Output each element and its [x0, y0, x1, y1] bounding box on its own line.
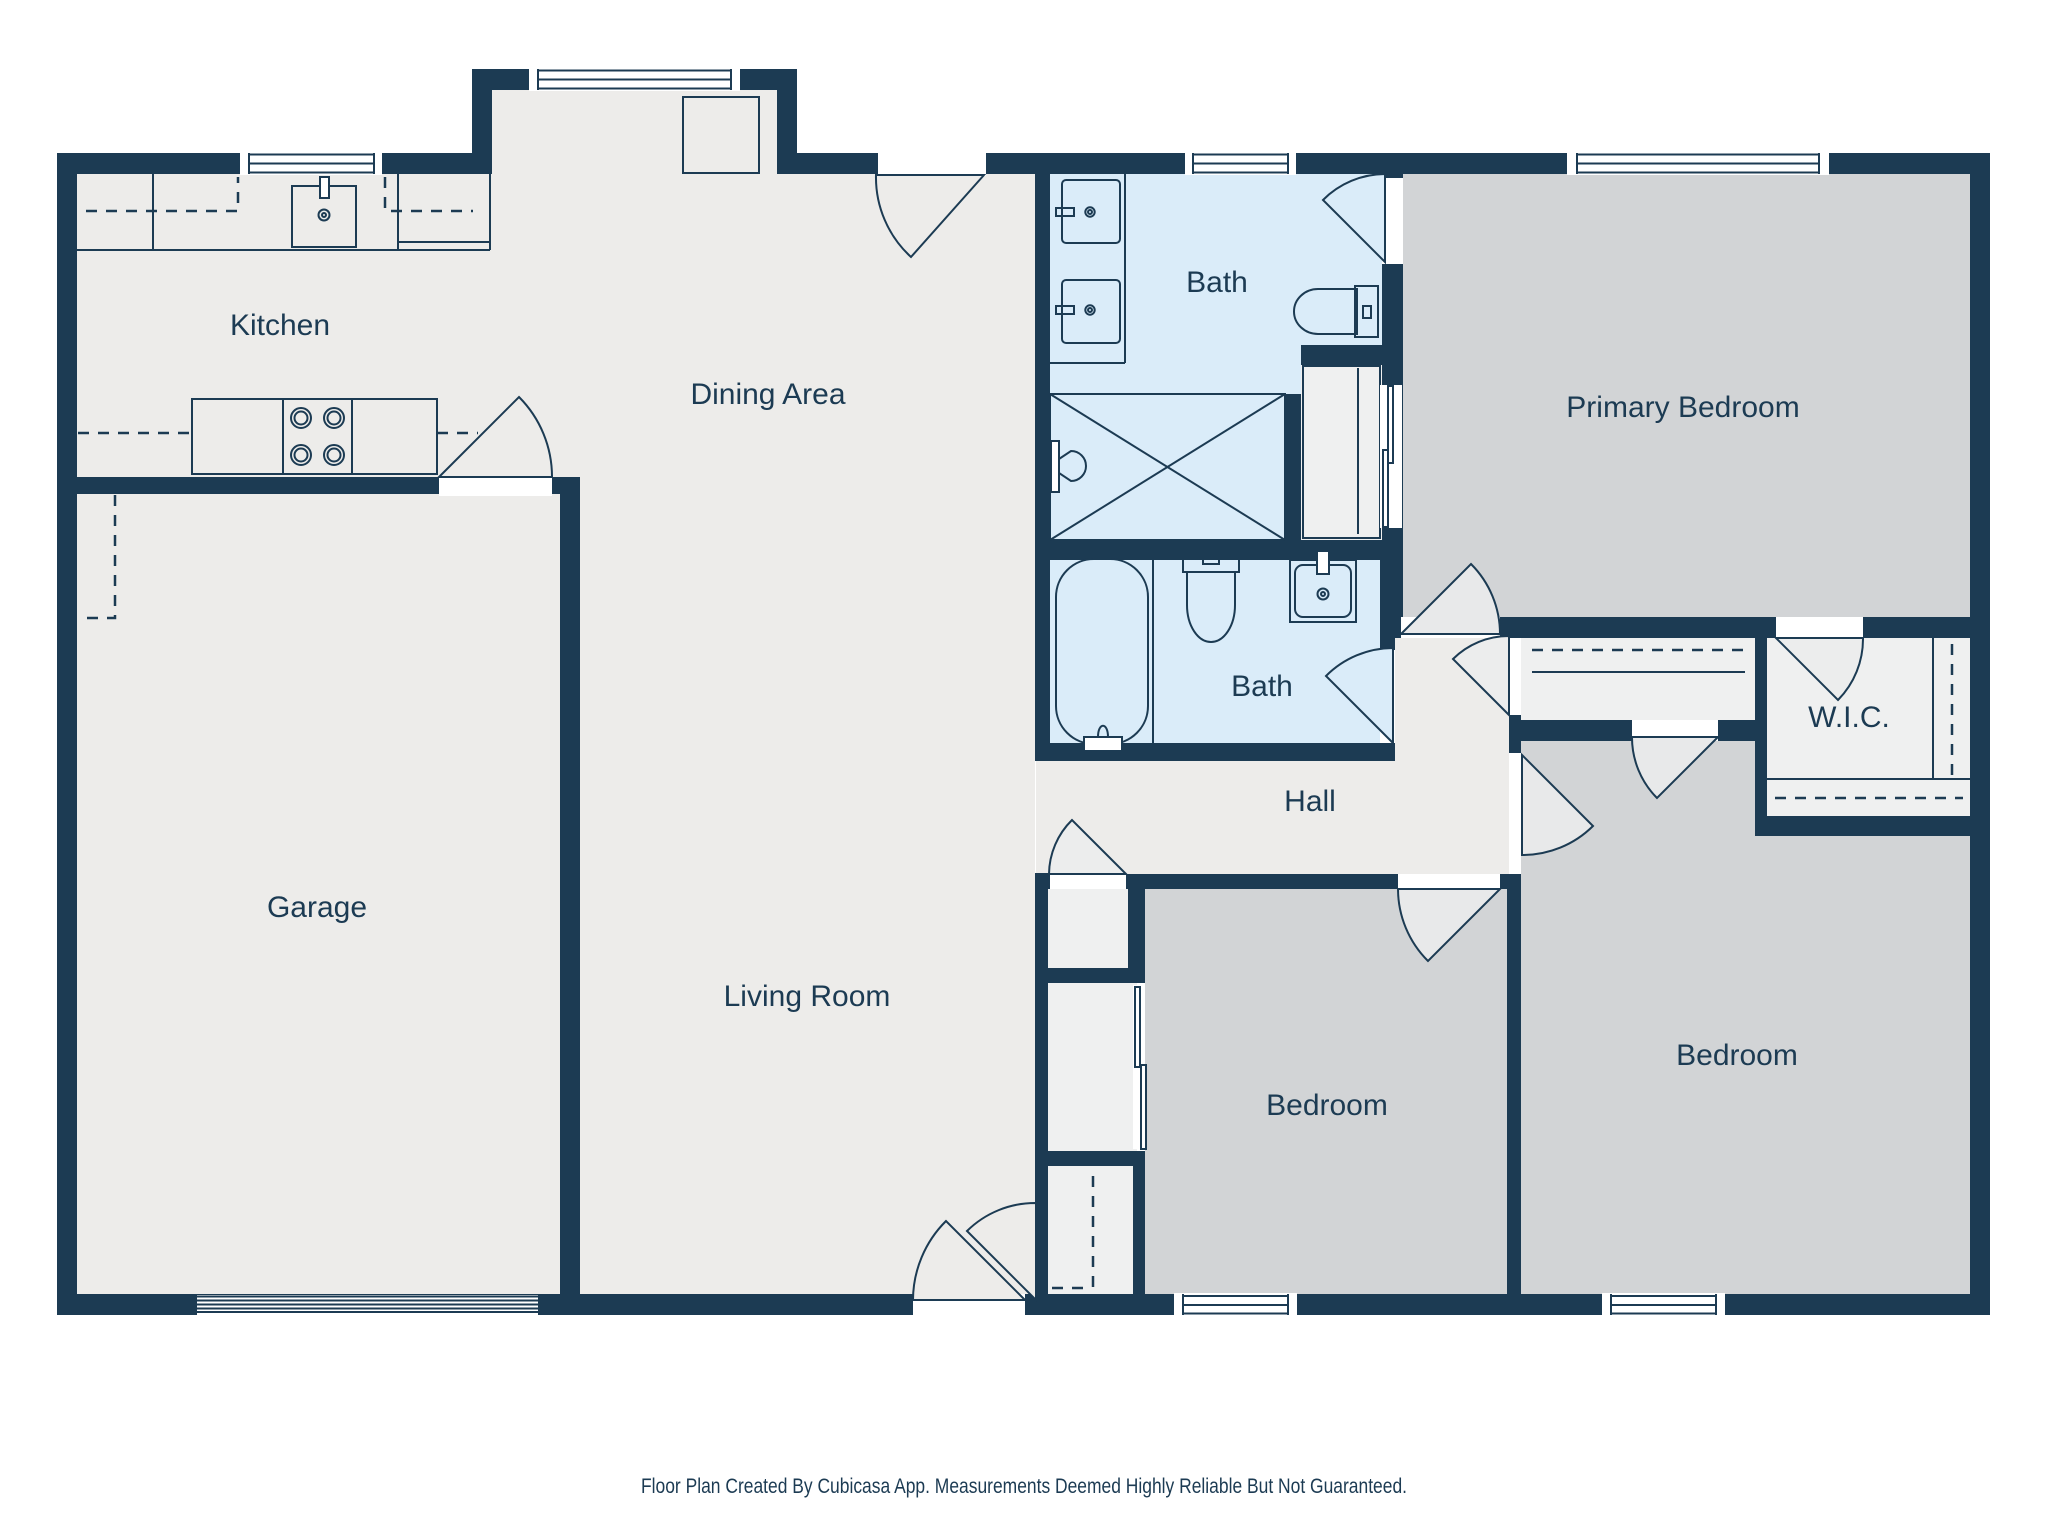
- svg-text:W.I.C.: W.I.C.: [1808, 701, 1890, 734]
- svg-text:Bedroom: Bedroom: [1676, 1039, 1798, 1072]
- svg-text:Dining Area: Dining Area: [690, 378, 845, 411]
- svg-text:Hall: Hall: [1284, 785, 1336, 818]
- svg-text:Floor Plan Created By Cubicasa: Floor Plan Created By Cubicasa App. Meas…: [641, 1475, 1407, 1498]
- svg-text:Bath: Bath: [1231, 670, 1293, 703]
- svg-text:Garage: Garage: [267, 891, 367, 924]
- svg-text:Primary Bedroom: Primary Bedroom: [1566, 391, 1799, 424]
- svg-text:Living Room: Living Room: [724, 980, 891, 1013]
- svg-text:Bath: Bath: [1186, 266, 1248, 299]
- svg-text:Bedroom: Bedroom: [1266, 1089, 1388, 1122]
- svg-text:Kitchen: Kitchen: [230, 309, 330, 342]
